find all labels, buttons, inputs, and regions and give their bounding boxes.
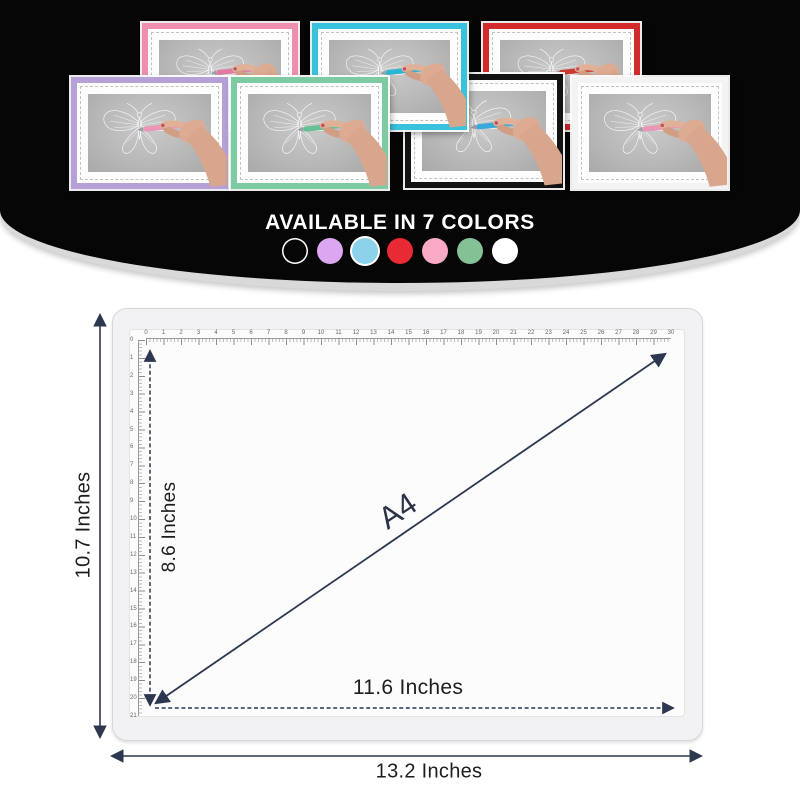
ruler-left-number: 18 [130, 659, 137, 665]
ruler-top-number: 29 [650, 330, 657, 336]
pen-tip [297, 126, 303, 132]
light-pad-purple [71, 77, 228, 189]
ruler-top-number: 20 [493, 330, 500, 336]
ruler-left-number: 1 [130, 355, 133, 361]
inner-height-label: 8.6 Inches [159, 482, 181, 573]
ruler-top-number: 18 [458, 330, 465, 336]
ruler-top-number: 28 [633, 330, 640, 336]
ruler-left-number: 11 [130, 534, 136, 540]
inner-width-label: 11.6 Inches [353, 676, 463, 700]
ruler-top-number: 26 [598, 330, 605, 336]
ruler-left-number: 9 [130, 498, 133, 504]
ruler-left-number: 0 [130, 337, 133, 343]
ruler-top-number: 12 [353, 330, 360, 336]
ruler-top-number: 22 [528, 330, 535, 336]
color-swatch-green [457, 238, 483, 264]
color-swatch-white [492, 238, 518, 264]
pen-tip [211, 70, 217, 76]
color-swatch-red [387, 238, 413, 264]
ruler-top-number: 17 [440, 330, 447, 336]
hand-with-pen [467, 90, 562, 188]
ruler-left-number: 3 [130, 391, 133, 397]
ruler-top-number: 19 [475, 330, 482, 336]
ruler-top-number: 27 [615, 330, 622, 336]
ruler-top-number: 24 [563, 330, 570, 336]
ruler-left-number: 21 [130, 713, 137, 719]
ruler-top-number: 0 [144, 330, 147, 336]
ruler-left-number: 10 [130, 516, 137, 522]
ruler-top-number: 7 [267, 330, 270, 336]
hero-section: AVAILABLE IN 7 COLORS [0, 0, 800, 283]
ruler-top-number: 4 [214, 330, 217, 336]
light-pad-white [572, 77, 728, 189]
ruler-top-number: 9 [302, 330, 305, 336]
pen-tip [380, 70, 386, 76]
light-pad-green [231, 77, 388, 189]
ruler-left-number: 14 [130, 588, 137, 594]
color-swatch-blue [352, 238, 378, 264]
ruler-top-number: 14 [388, 330, 395, 336]
ruler-top-number: 1 [162, 330, 165, 336]
ruler-left-number: 7 [130, 462, 133, 468]
ruler-top-number: 10 [318, 330, 325, 336]
hero-title: AVAILABLE IN 7 COLORS [0, 211, 800, 235]
ruler-left-number: 15 [130, 606, 137, 612]
pen-tip [137, 126, 143, 132]
color-swatch-black [282, 238, 308, 264]
ruler-top-number: 15 [405, 330, 412, 336]
ruler-left-number: 17 [130, 641, 137, 647]
ruler-top-number: 23 [545, 330, 552, 336]
pen-tip [637, 126, 643, 132]
ruler-left-number: 8 [130, 480, 133, 486]
ruler-left-number: 12 [130, 552, 137, 558]
product-image: AVAILABLE IN 7 COLORS 012345678910111213… [0, 0, 800, 800]
ruler-top-number: 25 [580, 330, 587, 336]
ruler-top-number: 21 [510, 330, 517, 336]
ruler-left: 0123456789101112131415161718192021 [130, 340, 148, 716]
ruler-left-number: 19 [130, 677, 137, 683]
ruler-top-major-ticks [146, 338, 671, 345]
ruler-left-number: 16 [130, 623, 137, 629]
ruler-left-number: 6 [130, 444, 133, 450]
ruler-top-number: 13 [370, 330, 377, 336]
ruler-left-number: 2 [130, 373, 133, 379]
ruler-left-number: 20 [130, 695, 137, 701]
ruler-top-number: 16 [423, 330, 430, 336]
ruler-left-number: 13 [130, 570, 137, 576]
color-swatch-pink [422, 238, 448, 264]
outer-height-label: 10.7 Inches [73, 472, 96, 579]
outer-width-label: 13.2 Inches [376, 761, 483, 784]
ruler-top-number: 11 [335, 330, 341, 336]
hand-with-pen [293, 93, 387, 189]
hand-with-pen [633, 93, 727, 189]
ruler-top-number: 3 [197, 330, 200, 336]
pen-tip [470, 124, 477, 130]
color-swatches-row [0, 238, 800, 264]
ruler-top-number: 5 [232, 330, 235, 336]
ruler-top-number: 8 [284, 330, 287, 336]
hand-with-pen [133, 93, 227, 189]
ruler-top-number: 30 [668, 330, 675, 336]
ruler-top-number: 6 [249, 330, 252, 336]
ruler-left-number: 4 [130, 409, 133, 415]
ruler-top: 0123456789101112131415161718192021222324… [146, 330, 671, 346]
ruler-left-major-ticks [138, 340, 145, 716]
color-swatch-purple [317, 238, 343, 264]
ruler-left-number: 5 [130, 427, 133, 433]
ruler-top-number: 2 [179, 330, 182, 336]
